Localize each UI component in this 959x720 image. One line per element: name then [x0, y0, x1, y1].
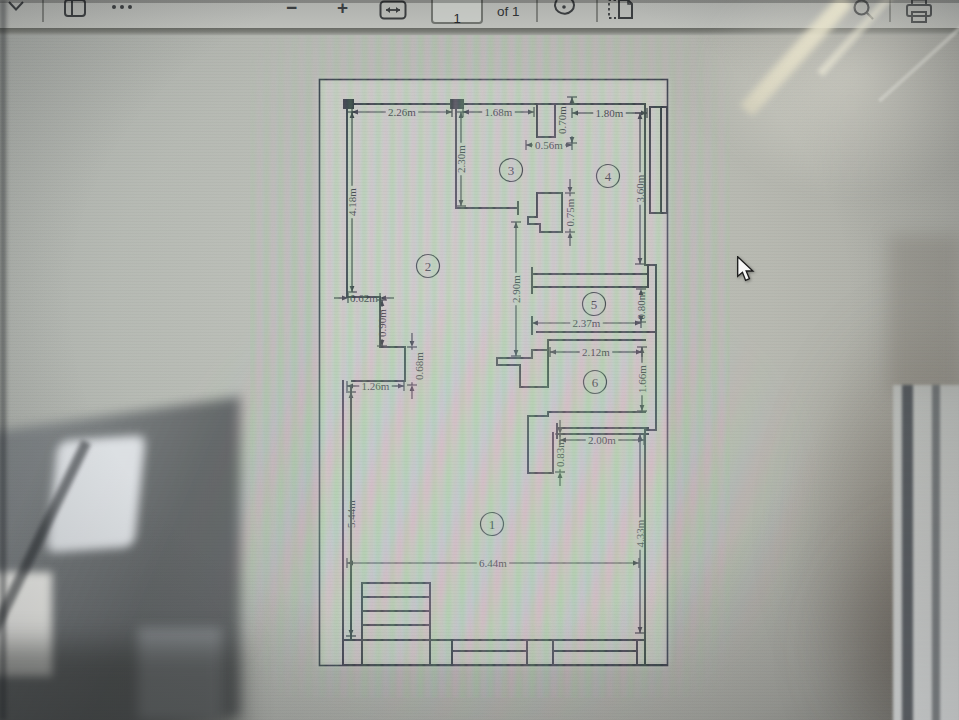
dimension-label: 0.62m — [350, 292, 378, 304]
room-number: 3 — [508, 163, 515, 178]
toolbar-shadow-band — [0, 28, 959, 35]
dimension-label: 1.66m — [636, 365, 648, 393]
screen-photo: 2.26m1.68m0.70m1.80m0.56m2.30m4.18m3.60m… — [0, 0, 959, 720]
plan-walls — [343, 100, 667, 665]
dimension-label: 0.90m — [376, 309, 388, 337]
room-number: 6 — [592, 375, 599, 390]
fit-width-icon[interactable] — [379, 0, 407, 20]
dimension-label: 6.44m — [479, 557, 507, 569]
dimension-label: 1.26m — [362, 380, 390, 392]
room-label: 4 — [597, 165, 620, 188]
pdf-toolbar: − + 1 of 1 — [0, 0, 959, 28]
dimension-label: 0.80m — [635, 291, 647, 319]
dimension-label: 5.44m — [345, 500, 357, 528]
room-number: 1 — [489, 517, 496, 532]
toolbar-separator — [536, 0, 538, 22]
zoom-in-button[interactable]: + — [337, 0, 348, 18]
dimension-label: 2.90m — [510, 275, 522, 303]
dimension-label: 0.70m — [556, 106, 568, 134]
zoom-in-label: + — [337, 0, 348, 18]
dimension-label: 2.30m — [455, 145, 467, 173]
dimension-label: 2.26m — [388, 106, 416, 118]
room-label: 1 — [481, 513, 504, 536]
dimension-label: 0.83m — [554, 439, 566, 467]
sidebar-toggle-icon[interactable] — [63, 0, 87, 18]
toolbar-separator — [42, 0, 44, 22]
dimension-label: 1.68m — [485, 106, 513, 118]
dimension-label: 1.80m — [596, 107, 624, 119]
dimension-label: 2.00m — [588, 434, 616, 446]
room-number: 5 — [591, 297, 598, 312]
zoom-out-button[interactable]: − — [286, 0, 297, 18]
dimension-label: 0.75m — [564, 198, 576, 226]
more-options-icon[interactable] — [110, 2, 134, 12]
toolbar-separator — [596, 0, 598, 22]
floor-plan: 2.26m1.68m0.70m1.80m0.56m2.30m4.18m3.60m… — [0, 0, 959, 720]
search-icon[interactable] — [852, 0, 876, 22]
print-icon[interactable] — [904, 0, 934, 24]
zoom-out-label: − — [286, 0, 297, 18]
dimension-label: 4.18m — [346, 188, 358, 216]
toolbar-separator — [889, 0, 891, 22]
rotate-icon[interactable] — [549, 0, 581, 21]
dimension-label: 0.68m — [413, 352, 425, 380]
room-label: 3 — [500, 159, 523, 182]
dimension-label: 3.60m — [634, 174, 646, 202]
room-label: 5 — [583, 293, 606, 316]
dimension-label: 4.33m — [634, 519, 646, 547]
dimension-label: 0.56m — [535, 139, 563, 151]
room-label: 2 — [417, 255, 440, 278]
chevron-down-icon[interactable] — [5, 0, 27, 13]
page-view-icon[interactable] — [605, 0, 637, 21]
page-number-input[interactable]: 1 — [431, 0, 483, 24]
dimension-lines: 2.26m1.68m0.70m1.80m0.56m2.30m4.18m3.60m… — [334, 97, 648, 636]
room-number: 4 — [605, 169, 612, 184]
dimension-label: 2.12m — [582, 346, 610, 358]
dimension-label: 2.37m — [573, 317, 601, 329]
room-label: 6 — [584, 371, 607, 394]
page-count-label: of 1 — [497, 4, 520, 19]
room-number: 2 — [425, 259, 432, 274]
